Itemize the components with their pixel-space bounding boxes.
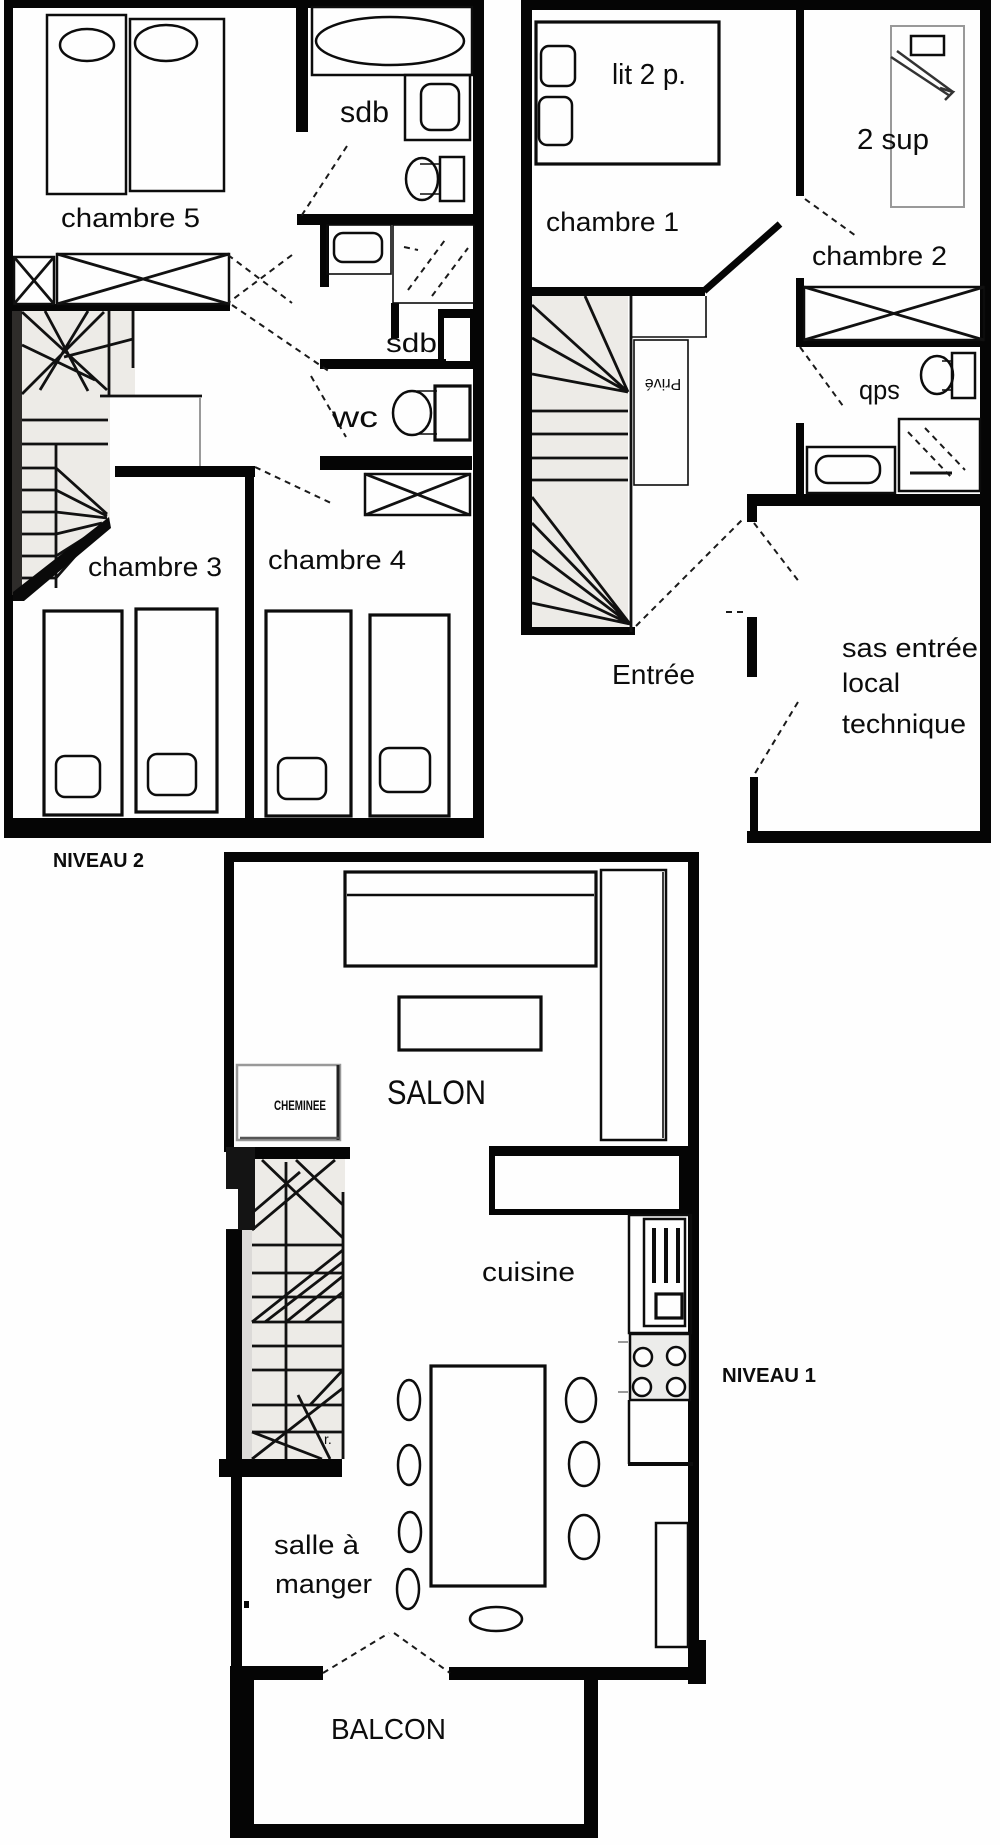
- svg-text:SALON: SALON: [387, 1074, 486, 1112]
- svg-text:2 sup: 2 sup: [857, 124, 929, 156]
- svg-text:r.: r.: [324, 1431, 332, 1447]
- svg-text:chambre 4: chambre 4: [268, 545, 406, 575]
- svg-text:BALCON: BALCON: [331, 1714, 446, 1746]
- svg-text:sdb: sdb: [340, 96, 389, 129]
- svg-text:chambre 1: chambre 1: [546, 207, 679, 237]
- svg-text:NIVEAU 1: NIVEAU 1: [722, 1365, 816, 1387]
- svg-text:technique: technique: [842, 709, 966, 739]
- svg-text:sas entrée: sas entrée: [842, 633, 978, 663]
- svg-text:lit 2 p.: lit 2 p.: [612, 59, 686, 91]
- svg-text:local: local: [842, 668, 900, 698]
- svg-text:sdb: sdb: [859, 379, 900, 409]
- svg-text:chambre 5: chambre 5: [61, 203, 200, 233]
- svg-text:Privé: Privé: [645, 375, 682, 392]
- svg-text:wc: wc: [331, 401, 378, 434]
- svg-text:cuisine: cuisine: [482, 1257, 575, 1287]
- svg-text:chambre 3: chambre 3: [88, 552, 222, 582]
- svg-text:chambre 2: chambre 2: [812, 241, 947, 271]
- svg-text:manger: manger: [275, 1569, 372, 1599]
- svg-text:NIVEAU 2: NIVEAU 2: [53, 850, 144, 872]
- svg-text:Entrée: Entrée: [612, 659, 695, 690]
- svg-text:CHEMINEE: CHEMINEE: [274, 1097, 326, 1113]
- svg-text:sdb: sdb: [386, 328, 437, 358]
- svg-text:salle à: salle à: [274, 1530, 360, 1560]
